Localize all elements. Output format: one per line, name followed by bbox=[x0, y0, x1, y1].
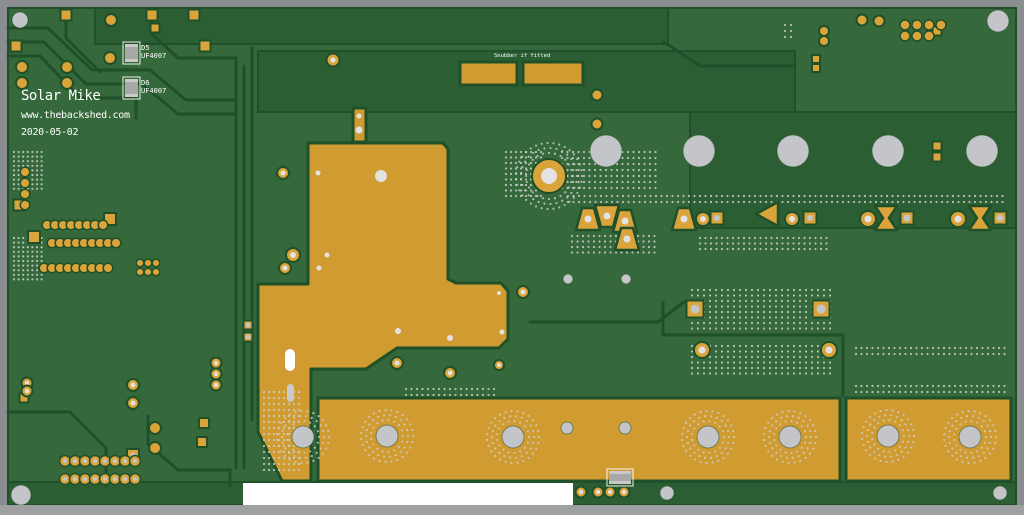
via-stitch-dot bbox=[943, 433, 945, 435]
via-stitch-dot bbox=[992, 391, 994, 393]
via-stitch-dot bbox=[751, 316, 753, 318]
via-stitch-dot bbox=[691, 361, 693, 363]
via-stitch-dot bbox=[817, 350, 819, 352]
via-stitch-dot bbox=[757, 327, 759, 329]
via-stitch-dot bbox=[548, 152, 550, 154]
via-stitch-dot bbox=[775, 444, 777, 446]
pad-hole bbox=[585, 216, 592, 223]
via-stitch-dot bbox=[677, 201, 679, 203]
via-stitch-dot bbox=[576, 175, 578, 177]
via-stitch-dot bbox=[382, 420, 384, 422]
via-stitch-dot bbox=[710, 248, 712, 250]
via-stitch-dot bbox=[829, 327, 831, 329]
via-stitch-dot bbox=[727, 327, 729, 329]
via-stitch-dot bbox=[638, 181, 640, 183]
via-stitch-dot bbox=[22, 242, 24, 244]
via-stitch-dot bbox=[571, 246, 573, 248]
via-stitch-dot bbox=[776, 242, 778, 244]
pad-hole bbox=[63, 477, 67, 481]
via-stitch-dot bbox=[874, 412, 876, 414]
via-stitch-dot bbox=[387, 451, 389, 453]
via-stitch-dot bbox=[998, 353, 1000, 355]
via-stitch-dot bbox=[765, 201, 767, 203]
via-stitch-dot bbox=[527, 430, 529, 432]
solder-pad-round bbox=[98, 220, 108, 230]
via-stitch-dot bbox=[787, 289, 789, 291]
via-stitch-dot bbox=[865, 449, 867, 451]
via-stitch-dot bbox=[913, 195, 915, 197]
solder-pad-round bbox=[924, 31, 934, 41]
via-stitch-dot bbox=[957, 201, 959, 203]
via-stitch-dot bbox=[801, 425, 803, 427]
via-stitch-dot bbox=[768, 436, 770, 438]
via-stitch-dot bbox=[811, 345, 813, 347]
via-stitch-dot bbox=[697, 294, 699, 296]
via-stitch-dot bbox=[263, 451, 265, 453]
routed-slot bbox=[285, 349, 295, 371]
via-stitch-dot bbox=[704, 248, 706, 250]
pcb-board: Solar Mike www.thebackshed.com 2020-05-0… bbox=[0, 0, 1024, 515]
via-stitch-dot bbox=[710, 242, 712, 244]
via-stitch-dot bbox=[583, 195, 585, 197]
drill-hole bbox=[12, 12, 28, 28]
via-stitch-dot bbox=[689, 425, 691, 427]
via-stitch-dot bbox=[638, 201, 640, 203]
via-stitch-dot bbox=[583, 163, 585, 165]
via-stitch-dot bbox=[406, 441, 408, 443]
via-stitch-dot bbox=[594, 181, 596, 183]
via-stitch-dot bbox=[765, 195, 767, 197]
via-stitch-dot bbox=[865, 421, 867, 423]
via-stitch-dot bbox=[294, 461, 296, 463]
via-stitch-dot bbox=[22, 151, 24, 153]
via-stitch-dot bbox=[943, 439, 945, 441]
solder-pad-round bbox=[104, 52, 116, 64]
via-stitch-dot bbox=[528, 186, 530, 188]
via-stitch-dot bbox=[372, 451, 374, 453]
via-stitch-dot bbox=[687, 442, 689, 444]
via-stitch-dot bbox=[627, 175, 629, 177]
via-stitch-dot bbox=[751, 322, 753, 324]
via-stitch-dot bbox=[780, 455, 782, 457]
via-stitch-dot bbox=[36, 260, 38, 262]
via-stitch-dot bbox=[811, 372, 813, 374]
via-stitch-dot bbox=[862, 444, 864, 446]
via-stitch-dot bbox=[530, 151, 532, 153]
via-stitch-dot bbox=[842, 195, 844, 197]
via-stitch-dot bbox=[948, 347, 950, 349]
via-stitch-dot bbox=[649, 201, 651, 203]
via-stitch-dot bbox=[721, 305, 723, 307]
via-stitch-dot bbox=[561, 157, 563, 159]
via-stitch-dot bbox=[502, 449, 504, 451]
via-stitch-dot bbox=[751, 311, 753, 313]
via-stitch-dot bbox=[13, 251, 15, 253]
via-stitch-dot bbox=[509, 415, 511, 417]
via-stitch-dot bbox=[948, 391, 950, 393]
via-stitch-dot bbox=[317, 415, 319, 417]
via-stitch-dot bbox=[989, 442, 991, 444]
via-stitch-dot bbox=[493, 388, 495, 390]
pad-hole bbox=[622, 490, 626, 494]
via-stitch-dot bbox=[283, 427, 285, 429]
via-stitch-dot bbox=[637, 235, 639, 237]
via-stitch-dot bbox=[715, 356, 717, 358]
copper-pour bbox=[460, 62, 517, 85]
via-stitch-dot bbox=[769, 327, 771, 329]
via-stitch-dot bbox=[460, 394, 462, 396]
via-stitch-dot bbox=[703, 327, 705, 329]
via-stitch-dot bbox=[748, 237, 750, 239]
via-stitch-dot bbox=[486, 433, 488, 435]
via-stitch-dot bbox=[566, 169, 568, 171]
via-stitch-dot bbox=[41, 251, 43, 253]
via-stitch-dot bbox=[699, 411, 701, 413]
via-stitch-dot bbox=[978, 417, 980, 419]
pad-hole bbox=[807, 215, 813, 221]
via-stitch-dot bbox=[263, 397, 265, 399]
via-stitch-dot bbox=[292, 449, 294, 451]
solder-pad-round bbox=[924, 20, 934, 30]
via-stitch-dot bbox=[292, 423, 294, 425]
via-stitch-dot bbox=[648, 240, 650, 242]
via-stitch-dot bbox=[809, 248, 811, 250]
via-stitch-dot bbox=[611, 201, 613, 203]
via-stitch-dot bbox=[907, 441, 909, 443]
via-stitch-dot bbox=[869, 424, 871, 426]
via-stitch-dot bbox=[751, 356, 753, 358]
via-stitch-dot bbox=[303, 420, 305, 422]
via-stitch-dot bbox=[621, 175, 623, 177]
via-stitch-dot bbox=[721, 452, 723, 454]
via-stitch-dot bbox=[505, 184, 507, 186]
via-stitch-dot bbox=[992, 424, 994, 426]
via-stitch-dot bbox=[649, 151, 651, 153]
via-stitch-dot bbox=[775, 300, 777, 302]
via-stitch-dot bbox=[561, 200, 563, 202]
via-stitch-dot bbox=[22, 278, 24, 280]
via-stitch-dot bbox=[22, 246, 24, 248]
via-stitch-dot bbox=[694, 413, 696, 415]
via-stitch-dot bbox=[905, 446, 907, 448]
drill-hole bbox=[683, 135, 715, 167]
via-stitch-dot bbox=[18, 156, 20, 158]
via-stitch-dot bbox=[317, 457, 319, 459]
via-stitch-dot bbox=[288, 452, 290, 454]
via-stitch-dot bbox=[416, 394, 418, 396]
via-stitch-dot bbox=[787, 294, 789, 296]
via-stitch-dot bbox=[583, 175, 585, 177]
via-stitch-dot bbox=[886, 201, 888, 203]
via-stitch-dot bbox=[715, 372, 717, 374]
via-stitch-dot bbox=[598, 251, 600, 253]
via-stitch-dot bbox=[632, 175, 634, 177]
via-stitch-dot bbox=[499, 458, 501, 460]
solder-pad-square bbox=[933, 142, 942, 151]
via-stitch-dot bbox=[577, 151, 579, 153]
via-stitch-dot bbox=[823, 372, 825, 374]
via-stitch-dot bbox=[721, 327, 723, 329]
via-stitch-dot bbox=[886, 195, 888, 197]
via-stitch-dot bbox=[739, 300, 741, 302]
via-stitch-dot bbox=[465, 388, 467, 390]
via-stitch-dot bbox=[689, 455, 691, 457]
via-stitch-dot bbox=[691, 433, 693, 435]
via-stitch-dot bbox=[757, 361, 759, 363]
via-stitch-dot bbox=[811, 356, 813, 358]
via-stitch-dot bbox=[325, 424, 327, 426]
via-stitch-dot bbox=[532, 152, 534, 154]
via-stitch-dot bbox=[36, 255, 38, 257]
unplated-hole bbox=[395, 328, 401, 334]
via-stitch-dot bbox=[809, 242, 811, 244]
via-stitch-dot bbox=[787, 248, 789, 250]
via-stitch-dot bbox=[799, 327, 801, 329]
via-stitch-dot bbox=[576, 240, 578, 242]
via-stitch-dot bbox=[809, 430, 811, 432]
via-stitch-dot bbox=[694, 458, 696, 460]
drill-hole bbox=[292, 426, 314, 448]
via-stitch-dot bbox=[697, 361, 699, 363]
via-stitch-dot bbox=[715, 289, 717, 291]
drill-hole bbox=[502, 426, 524, 448]
via-stitch-dot bbox=[22, 274, 24, 276]
via-stitch-dot bbox=[996, 195, 998, 197]
via-stitch-dot bbox=[575, 169, 577, 171]
via-stitch-dot bbox=[866, 435, 868, 437]
via-stitch-dot bbox=[867, 441, 869, 443]
via-stitch-dot bbox=[36, 174, 38, 176]
via-stitch-dot bbox=[882, 353, 884, 355]
via-stitch-dot bbox=[764, 445, 766, 447]
via-stitch-dot bbox=[518, 161, 520, 163]
via-stitch-dot bbox=[384, 409, 386, 411]
via-stitch-dot bbox=[616, 187, 618, 189]
via-stitch-dot bbox=[805, 327, 807, 329]
via-stitch-dot bbox=[973, 462, 975, 464]
via-stitch-dot bbox=[704, 242, 706, 244]
via-stitch-dot bbox=[987, 353, 989, 355]
via-stitch-dot bbox=[902, 441, 904, 443]
via-stitch-dot bbox=[525, 199, 527, 201]
via-stitch-dot bbox=[492, 430, 494, 432]
via-stitch-dot bbox=[293, 445, 295, 447]
via-stitch-dot bbox=[787, 305, 789, 307]
via-stitch-dot bbox=[770, 195, 772, 197]
via-stitch-dot bbox=[721, 316, 723, 318]
via-stitch-dot bbox=[36, 246, 38, 248]
via-stitch-dot bbox=[779, 449, 781, 451]
via-stitch-dot bbox=[979, 201, 981, 203]
via-stitch-dot bbox=[22, 160, 24, 162]
via-stitch-dot bbox=[298, 469, 300, 471]
via-stitch-dot bbox=[829, 289, 831, 291]
via-stitch-dot bbox=[505, 167, 507, 169]
via-stitch-dot bbox=[847, 195, 849, 197]
via-stitch-dot bbox=[697, 367, 699, 369]
via-stitch-dot bbox=[407, 435, 409, 437]
via-stitch-dot bbox=[317, 430, 319, 432]
via-stitch-dot bbox=[278, 457, 280, 459]
via-stitch-dot bbox=[571, 235, 573, 237]
via-stitch-dot bbox=[398, 446, 400, 448]
via-stitch-dot bbox=[18, 169, 20, 171]
via-stitch-dot bbox=[449, 388, 451, 390]
via-stitch-dot bbox=[627, 163, 629, 165]
via-stitch-dot bbox=[793, 322, 795, 324]
via-stitch-dot bbox=[910, 423, 912, 425]
via-stitch-dot bbox=[884, 414, 886, 416]
via-stitch-dot bbox=[395, 454, 397, 456]
via-stitch-dot bbox=[715, 350, 717, 352]
via-stitch-dot bbox=[793, 367, 795, 369]
via-stitch-dot bbox=[273, 469, 275, 471]
via-stitch-dot bbox=[792, 242, 794, 244]
via-stitch-dot bbox=[719, 447, 721, 449]
via-stitch-dot bbox=[404, 446, 406, 448]
via-stitch-dot bbox=[727, 311, 729, 313]
via-stitch-dot bbox=[537, 430, 539, 432]
via-stitch-dot bbox=[520, 151, 522, 153]
via-stitch-dot bbox=[779, 423, 781, 425]
via-stitch-dot bbox=[691, 289, 693, 291]
via-stitch-dot bbox=[793, 294, 795, 296]
via-stitch-dot bbox=[823, 361, 825, 363]
via-stitch-dot bbox=[406, 429, 408, 431]
drill-hole bbox=[987, 10, 1009, 32]
via-stitch-dot bbox=[937, 347, 939, 349]
via-stitch-dot bbox=[733, 305, 735, 307]
via-stitch-dot bbox=[932, 347, 934, 349]
via-stitch-dot bbox=[790, 30, 792, 32]
via-stitch-dot bbox=[13, 246, 15, 248]
via-stitch-dot bbox=[427, 388, 429, 390]
via-stitch-dot bbox=[493, 394, 495, 396]
via-stitch-dot bbox=[924, 195, 926, 197]
via-stitch-dot bbox=[31, 265, 33, 267]
via-stitch-dot bbox=[283, 409, 285, 411]
via-stitch-dot bbox=[989, 430, 991, 432]
via-stitch-dot bbox=[864, 201, 866, 203]
via-stitch-dot bbox=[396, 411, 398, 413]
via-stitch-dot bbox=[515, 151, 517, 153]
via-stitch-dot bbox=[871, 391, 873, 393]
via-stitch-dot bbox=[799, 300, 801, 302]
via-stitch-dot bbox=[799, 412, 801, 414]
via-stitch-dot bbox=[829, 367, 831, 369]
via-stitch-dot bbox=[715, 195, 717, 197]
via-stitch-dot bbox=[989, 453, 991, 455]
via-stitch-dot bbox=[786, 415, 788, 417]
via-stitch-dot bbox=[803, 248, 805, 250]
via-stitch-dot bbox=[581, 175, 583, 177]
via-stitch-dot bbox=[610, 181, 612, 183]
via-stitch-dot bbox=[944, 427, 946, 429]
via-stitch-dot bbox=[733, 294, 735, 296]
via-stitch-dot bbox=[288, 420, 290, 422]
via-stitch-dot bbox=[549, 147, 551, 149]
via-stitch-dot bbox=[519, 450, 521, 452]
via-stitch-dot bbox=[751, 350, 753, 352]
via-stitch-dot bbox=[503, 417, 505, 419]
via-stitch-dot bbox=[739, 305, 741, 307]
solder-pad-round bbox=[819, 36, 829, 46]
via-stitch-dot bbox=[992, 385, 994, 387]
via-stitch-dot bbox=[516, 410, 518, 412]
via-stitch-dot bbox=[979, 195, 981, 197]
via-stitch-dot bbox=[829, 372, 831, 374]
via-stitch-dot bbox=[775, 316, 777, 318]
via-stitch-dot bbox=[505, 189, 507, 191]
via-stitch-dot bbox=[273, 391, 275, 393]
via-stitch-dot bbox=[733, 316, 735, 318]
via-stitch-dot bbox=[604, 240, 606, 242]
pad-hole bbox=[214, 361, 218, 365]
via-stitch-dot bbox=[642, 246, 644, 248]
via-stitch-dot bbox=[754, 242, 756, 244]
pad-hole bbox=[131, 401, 136, 406]
via-stitch-dot bbox=[383, 414, 385, 416]
solder-pad-square bbox=[812, 64, 820, 72]
via-stitch-dot bbox=[482, 388, 484, 390]
via-stitch-dot bbox=[526, 420, 528, 422]
via-stitch-dot bbox=[754, 201, 756, 203]
via-stitch-dot bbox=[709, 327, 711, 329]
pad-hole bbox=[497, 363, 501, 367]
via-stitch-dot bbox=[709, 361, 711, 363]
via-stitch-dot bbox=[721, 294, 723, 296]
via-stitch-dot bbox=[820, 237, 822, 239]
via-stitch-dot bbox=[490, 450, 492, 452]
via-stitch-dot bbox=[268, 409, 270, 411]
solder-pad-round bbox=[900, 20, 910, 30]
pad-hole bbox=[113, 477, 117, 481]
via-stitch-dot bbox=[966, 457, 968, 459]
via-stitch-dot bbox=[803, 201, 805, 203]
via-stitch-dot bbox=[709, 316, 711, 318]
via-stitch-dot bbox=[721, 311, 723, 313]
unplated-hole bbox=[447, 335, 453, 341]
via-stitch-dot bbox=[763, 305, 765, 307]
via-stitch-dot bbox=[588, 157, 590, 159]
via-stitch-dot bbox=[699, 461, 701, 463]
via-stitch-dot bbox=[949, 430, 951, 432]
via-stitch-dot bbox=[293, 451, 295, 453]
via-stitch-dot bbox=[902, 414, 904, 416]
via-stitch-dot bbox=[710, 201, 712, 203]
via-stitch-dot bbox=[805, 345, 807, 347]
via-stitch-dot bbox=[739, 361, 741, 363]
via-stitch-dot bbox=[757, 305, 759, 307]
via-stitch-dot bbox=[776, 195, 778, 197]
via-stitch-dot bbox=[515, 195, 517, 197]
via-stitch-dot bbox=[913, 201, 915, 203]
via-stitch-dot bbox=[18, 179, 20, 181]
via-stitch-dot bbox=[638, 151, 640, 153]
via-stitch-dot bbox=[605, 195, 607, 197]
via-stitch-dot bbox=[769, 322, 771, 324]
drill-hole bbox=[561, 422, 573, 434]
via-stitch-dot bbox=[283, 397, 285, 399]
via-stitch-dot bbox=[600, 195, 602, 197]
via-stitch-dot bbox=[763, 327, 765, 329]
via-stitch-dot bbox=[697, 372, 699, 374]
via-stitch-dot bbox=[576, 192, 578, 194]
via-stitch-dot bbox=[763, 439, 765, 441]
via-stitch-dot bbox=[309, 422, 311, 424]
via-stitch-dot bbox=[910, 347, 912, 349]
via-stitch-dot bbox=[27, 156, 29, 158]
